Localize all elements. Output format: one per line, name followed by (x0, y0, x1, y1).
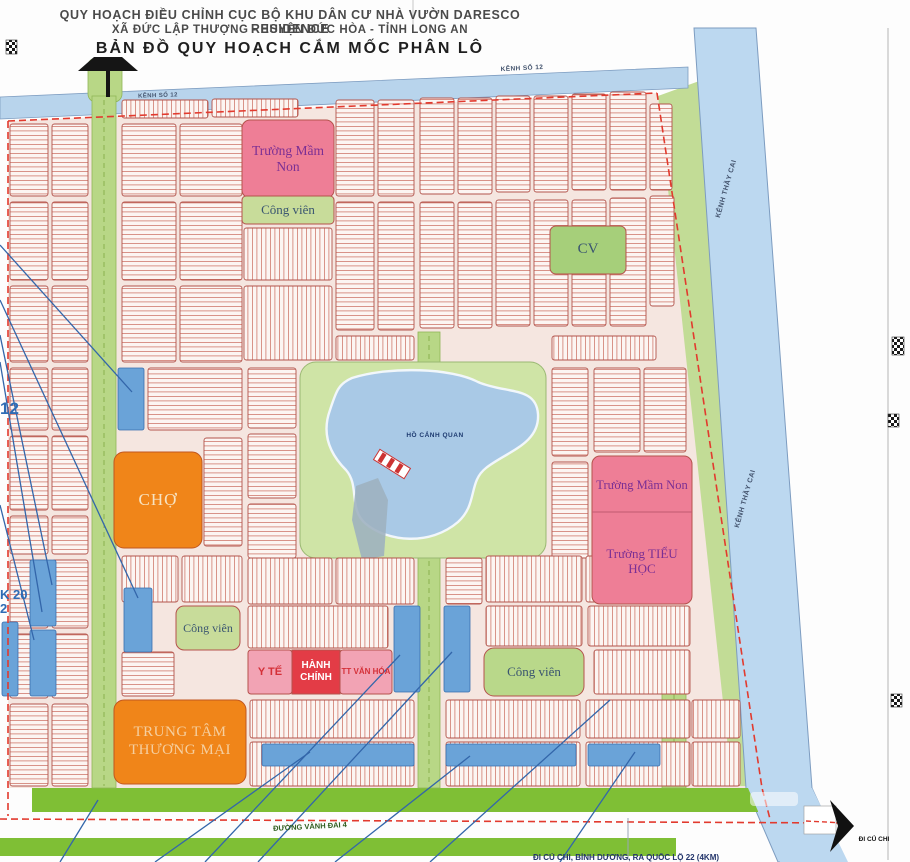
map-title-line2: XÃ ĐỨC LẬP THƯỢNG - HUYỆN ĐỨC HÒA - TỈNH… (30, 24, 550, 36)
park-mid-east-block (484, 648, 584, 696)
ring-road-north-buffer (32, 788, 758, 812)
school-east-block (592, 456, 692, 604)
road-continuation-box (804, 806, 836, 834)
park-top-block (242, 196, 334, 224)
map-title-line3: BẢN ĐỒ QUY HOẠCH CẮM MỐC PHÂN LÔ (30, 40, 550, 58)
map-canvas (0, 0, 910, 862)
trade-center-block (114, 700, 246, 784)
park-mid-west-block (176, 606, 240, 650)
watermark (750, 792, 798, 806)
market-block (114, 452, 202, 548)
cv-park-block (550, 226, 626, 274)
kindergarten-top-block (242, 120, 334, 198)
planning-map-image: QUY HOẠCH ĐIỀU CHỈNH CỤC BỘ KHU DÂN CƯ N… (0, 0, 910, 862)
administration-block (292, 650, 340, 694)
medical-block (248, 650, 292, 694)
